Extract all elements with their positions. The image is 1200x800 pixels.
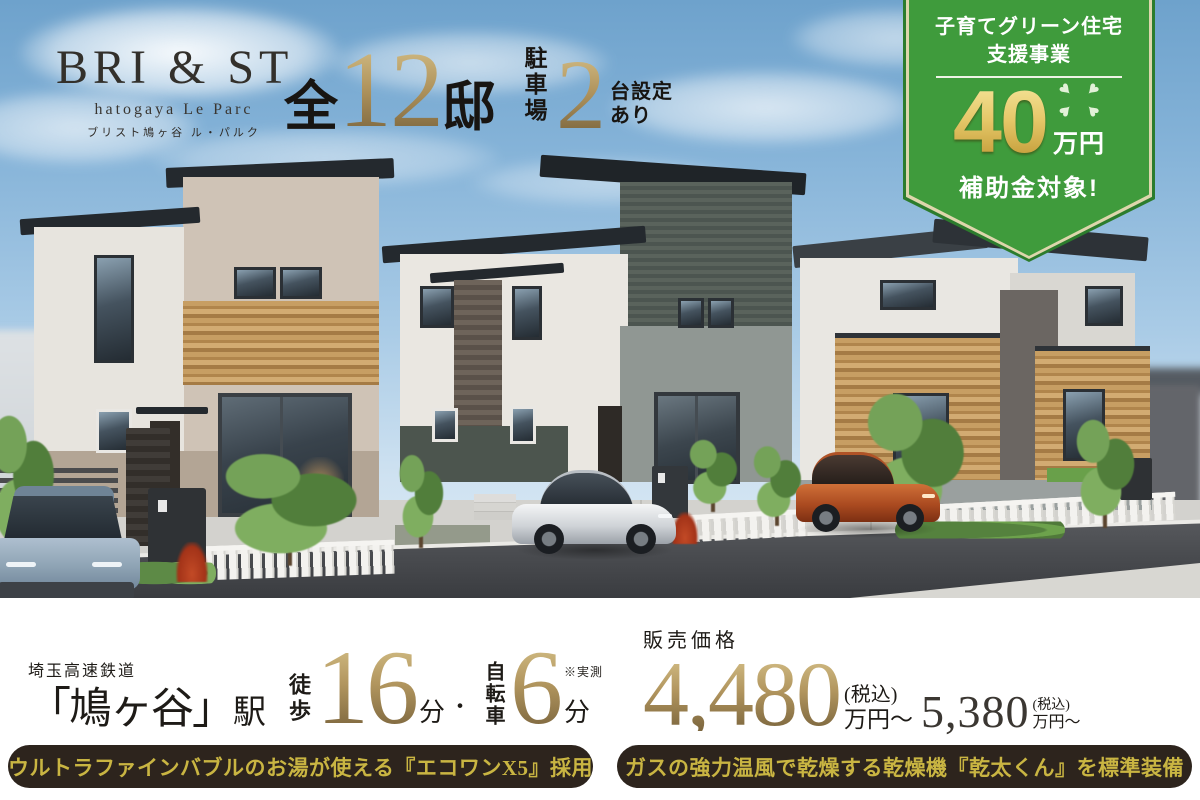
brand-subtitle-en: hatogaya Le Parc: [56, 101, 292, 119]
window: [280, 267, 322, 299]
walk-unit: 分: [419, 692, 445, 729]
price-row: 4,480 (税込) 万円〜 5,380 (税込) 万円〜: [643, 659, 1081, 731]
real-estate-flyer: BRI & ST hatogaya Le Parc ブリスト鳩ヶ谷 ル・パルク …: [0, 0, 1200, 800]
parking-note: 台設定 あり: [610, 80, 673, 128]
window: [420, 286, 454, 328]
car-orange: [796, 450, 940, 538]
station-block: 埼玉高速鉄道 「鳩ヶ谷」駅: [28, 657, 266, 731]
badge-side: ♥ ♥ ♥ ♥ 万円: [1053, 80, 1105, 160]
brand-logo: BRI & ST hatogaya Le Parc ブリスト鳩ヶ谷 ル・パルク: [56, 44, 292, 140]
feature-pill-kanta: ガスの強力温風で乾燥する乾燥機『乾太くん』を標準装備: [617, 745, 1192, 788]
car-wheel: [896, 504, 924, 532]
railway-name: 埼玉高速鉄道: [28, 657, 266, 681]
tree: [1072, 414, 1138, 528]
total-suffix: 邸: [442, 80, 496, 134]
parking-label: 駐車場: [516, 46, 550, 124]
tree: [686, 436, 740, 512]
clover-leaf: ♥: [1082, 79, 1103, 100]
total-count: 12: [338, 47, 442, 136]
clover-icon: ♥ ♥ ♥ ♥: [1059, 80, 1099, 120]
feature-pill-ecoone: ウルトラファインバブルのお湯が使える『エコワンX5』採用: [8, 745, 593, 788]
subsidy-badge: 子育てグリーン住宅 支援事業 40 ♥ ♥ ♥ ♥ 万円: [903, 0, 1155, 262]
badge-amount-unit: 万円: [1053, 124, 1105, 160]
window: [678, 298, 704, 328]
headline-units-parking: 全 12 邸 駐車場 2 台設定 あり: [284, 28, 673, 136]
total-prefix: 全: [284, 80, 338, 134]
badge-title-line2: 支援事業: [903, 41, 1155, 69]
badge-amount: 40: [953, 80, 1047, 164]
window: [432, 408, 458, 442]
separator-dot: ・: [449, 689, 471, 721]
station-name: 「鳩ヶ谷」: [28, 686, 233, 733]
wood-siding: [183, 301, 379, 385]
tree: [396, 450, 446, 548]
measurement-note: ※実測: [564, 663, 603, 680]
car-blue: [0, 486, 140, 598]
window: [1085, 286, 1123, 326]
car-headlight: [658, 514, 672, 518]
info-bar: 埼玉高速鉄道 「鳩ヶ谷」駅 徒歩 16 分 ・ 自転車 6 ※実測 分 販売価格…: [0, 598, 1200, 745]
badge-title: 子育てグリーン住宅 支援事業: [903, 13, 1155, 69]
price-min-unit: 万円〜: [844, 708, 913, 731]
parking-note-line2: あり: [610, 104, 673, 128]
red-plant: [176, 542, 208, 582]
window: [880, 280, 936, 310]
car-headlight: [922, 494, 935, 498]
brand-subtitle-jp: ブリスト鳩ヶ谷 ル・パルク: [56, 124, 292, 140]
price-max-unit: 万円〜: [1033, 715, 1081, 731]
badge-caption: 補助金対象!: [903, 168, 1155, 203]
feature-pills-row: ウルトラファインバブルのお湯が使える『エコワンX5』採用 ガスの強力温風で乾燥す…: [0, 745, 1200, 788]
price-min-units: (税込) 万円〜: [844, 685, 913, 731]
car-wheel: [626, 524, 656, 554]
price-min: 4,480: [643, 659, 840, 731]
entrance-eave: [136, 407, 208, 414]
price-min-tax: (税込): [844, 685, 913, 705]
car-windshield: [4, 496, 122, 540]
station-suffix: 駅: [233, 695, 266, 731]
tree: [215, 448, 365, 566]
car-bumper: [0, 582, 134, 598]
parking-count: 2: [556, 54, 604, 136]
exterior-render-photo: BRI & ST hatogaya Le Parc ブリスト鳩ヶ谷 ル・パルク …: [0, 0, 1200, 598]
window: [234, 267, 276, 299]
clover-leaf: ♥: [1055, 79, 1076, 100]
car-headlight: [92, 562, 122, 567]
clover-leaf: ♥: [1055, 100, 1076, 121]
bike-minutes: 6: [510, 646, 560, 731]
price-block: 販売価格 4,480 (税込) 万円〜 5,380 (税込) 万円〜: [643, 624, 1081, 731]
badge-amount-row: 40 ♥ ♥ ♥ ♥ 万円: [903, 80, 1155, 164]
parking-note-line1: 台設定: [610, 80, 673, 104]
clover-leaf: ♥: [1082, 100, 1103, 121]
badge-content: 子育てグリーン住宅 支援事業 40 ♥ ♥ ♥ ♥ 万円: [903, 0, 1155, 262]
price-max-tax: (税込): [1033, 699, 1081, 713]
car-wheel: [812, 504, 840, 532]
bike-unit-note: ※実測 分: [564, 663, 603, 731]
car-wheel: [534, 524, 564, 554]
mailbox-label: [158, 500, 167, 512]
window: [510, 406, 536, 444]
window: [708, 298, 734, 328]
price-max: 5,380: [921, 692, 1030, 731]
walk-minutes: 16: [316, 646, 416, 731]
station-line: 「鳩ヶ谷」駅: [28, 688, 266, 731]
window: [94, 255, 134, 363]
brand-name: BRI & ST: [56, 44, 292, 92]
entrance-steps: [474, 494, 516, 520]
bike-label: 自転車: [479, 661, 508, 727]
bike-unit: 分: [564, 692, 590, 729]
badge-title-line1: 子育てグリーン住宅: [903, 13, 1155, 41]
price-max-units: (税込) 万円〜: [1033, 699, 1081, 731]
walk-label: 徒歩: [282, 673, 314, 725]
window: [512, 286, 542, 340]
car-silver: [512, 468, 676, 560]
car-headlight: [6, 562, 36, 567]
